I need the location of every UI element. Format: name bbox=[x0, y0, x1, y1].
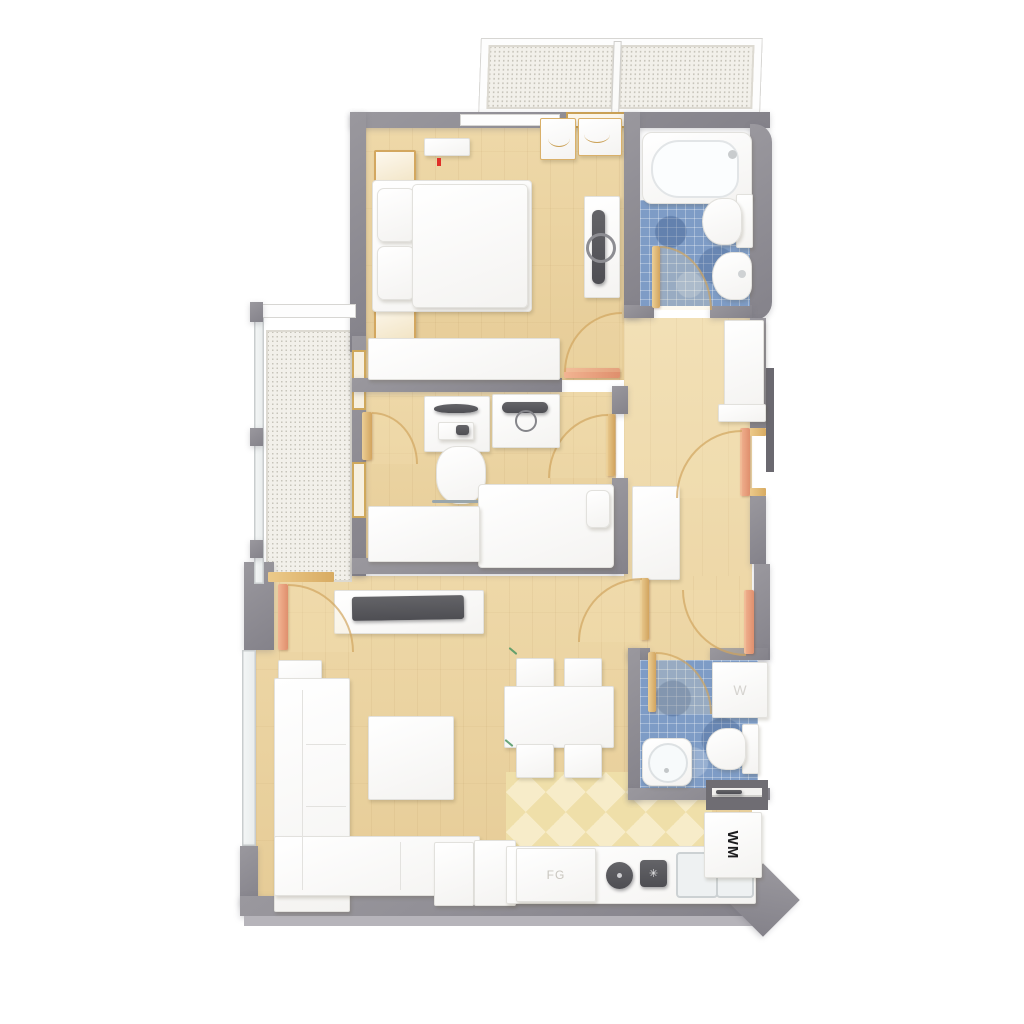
round-sink-basin bbox=[648, 743, 688, 783]
washer-box-label: W bbox=[713, 663, 767, 717]
toilet-bowl-2 bbox=[706, 728, 746, 770]
round-sink-drain bbox=[664, 768, 669, 773]
bathroom2-door-arc bbox=[656, 652, 712, 714]
washer-box: W bbox=[712, 662, 768, 718]
floor-plan: FG ✳ WM W bbox=[0, 0, 1024, 1024]
bathroom2-door-leaf bbox=[648, 652, 656, 712]
bathroom-2: W bbox=[0, 0, 1024, 1024]
